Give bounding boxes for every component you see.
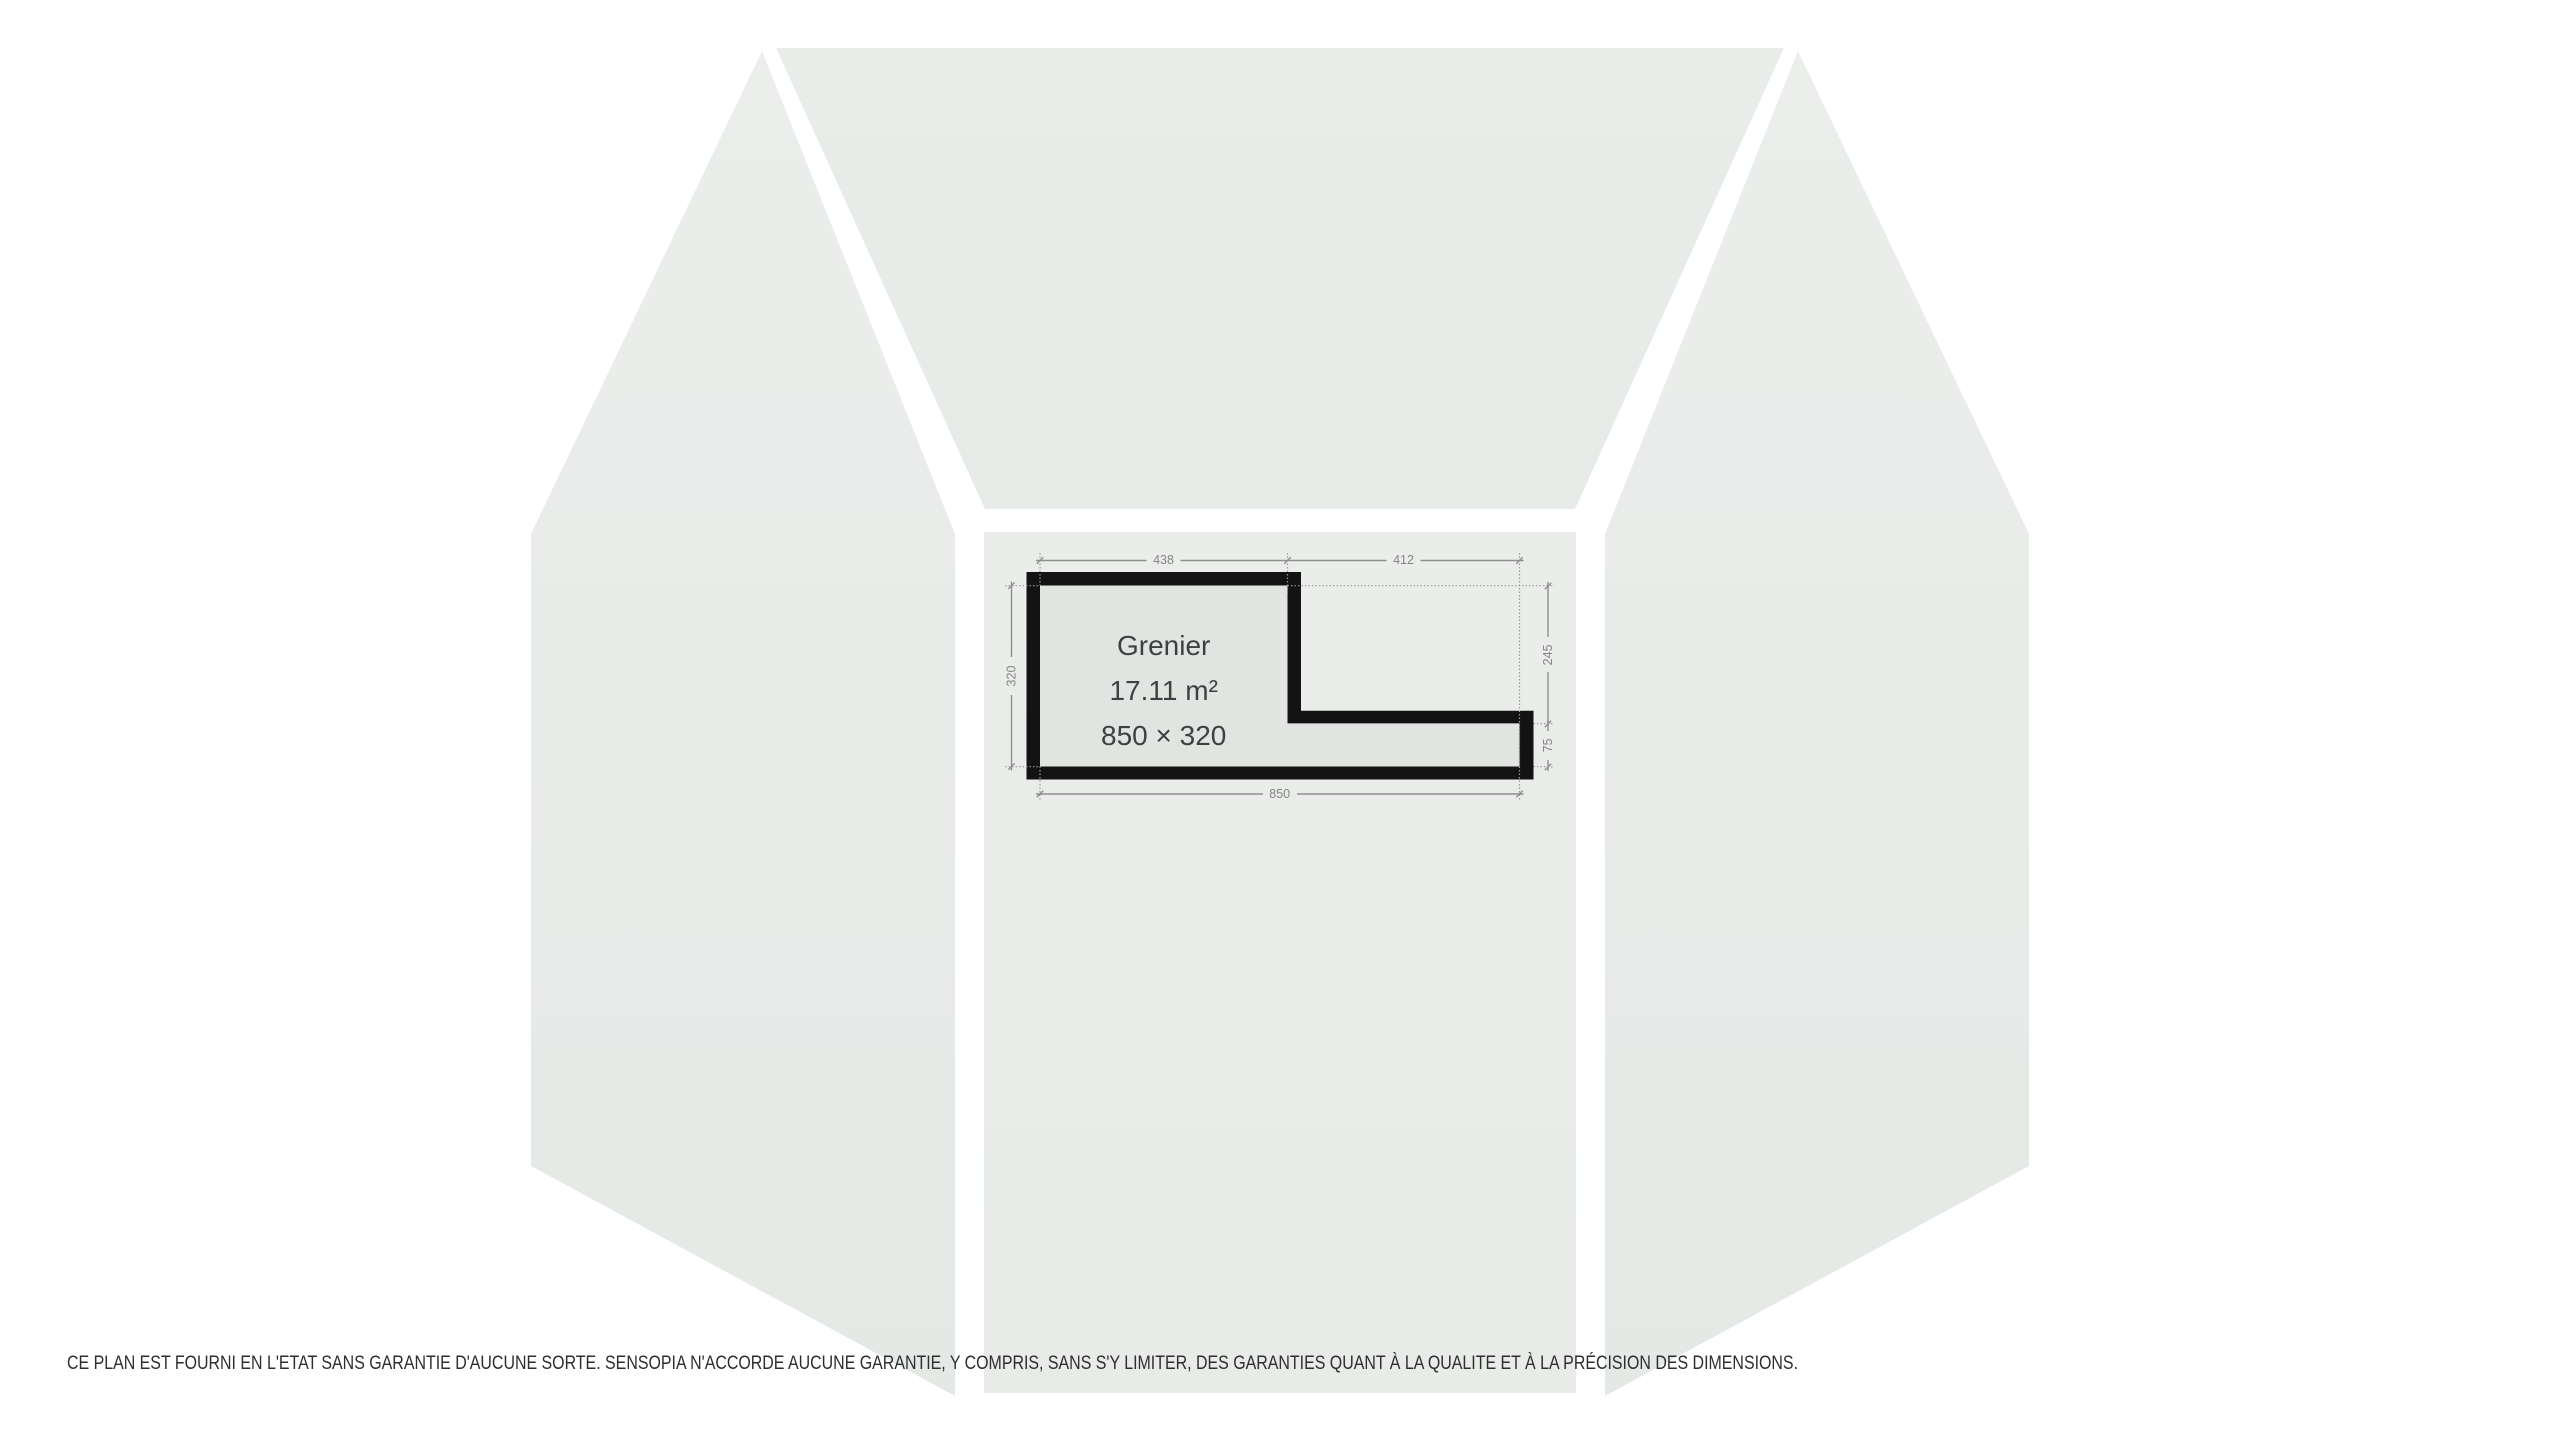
svg-text:850 × 320: 850 × 320 [1101,720,1226,751]
svg-text:17.11 m²: 17.11 m² [1109,675,1217,706]
svg-text:850: 850 [1269,787,1290,801]
svg-text:75: 75 [1541,738,1555,752]
svg-text:Grenier: Grenier [1117,630,1210,661]
svg-text:245: 245 [1541,644,1555,665]
svg-text:438: 438 [1153,553,1174,567]
svg-text:320: 320 [1005,666,1019,687]
svg-text:CE PLAN EST FOURNI EN L'ETAT S: CE PLAN EST FOURNI EN L'ETAT SANS GARANT… [67,1351,1798,1374]
svg-text:412: 412 [1393,553,1414,567]
